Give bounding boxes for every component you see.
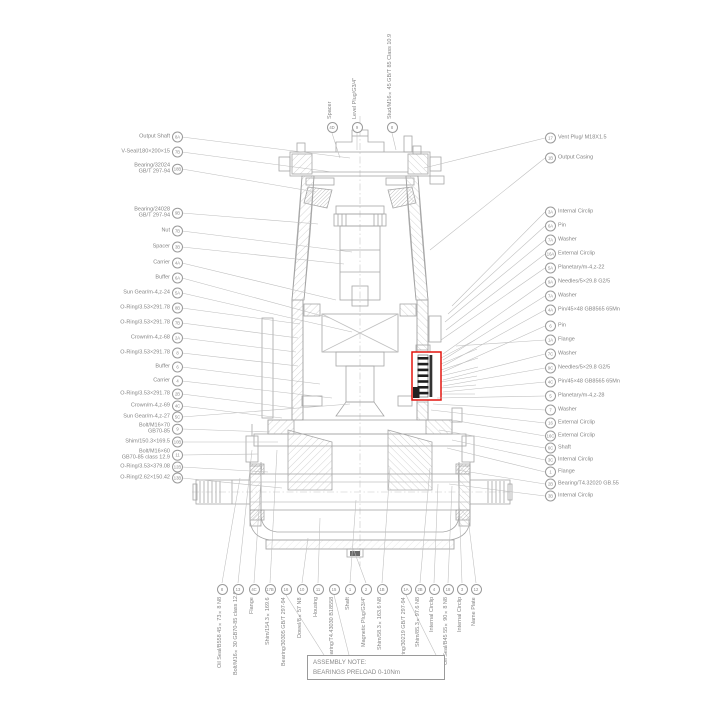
leader-line [449,484,545,496]
part-label: Crown/m-4,z-682A [0,333,183,344]
part-balloon: 7B [172,318,183,329]
part-balloon: 7 [545,405,556,416]
leader-line [182,231,352,252]
leader-line [318,518,320,583]
part-balloon: 10 [297,584,308,595]
leader-line [302,538,308,583]
leader-line [182,467,268,472]
part-balloon: 5A [545,263,556,274]
part-balloon: 7A [545,291,556,302]
part-label-text: O-Ring/3.53×291.78 [120,391,170,397]
part-balloon: 2B [415,584,426,595]
part-balloon: 1A [401,584,412,595]
leader-line [448,226,545,314]
part-label: Spacer3B [0,242,183,253]
part-label: 7AWasher [545,291,723,302]
leader-line [270,450,277,583]
part-balloon: 3 [457,584,468,595]
part-balloon: 7B [172,226,183,237]
part-label: Buffer6 [0,362,183,373]
part-balloon: 4A [545,305,556,316]
part-label-text: Bolt/M16×30 GB70-85 class 12.9 [233,597,243,675]
part-label-text: Pin/45×48 GB8565 65Mn [558,307,620,313]
part-balloon: 6A [545,221,556,232]
part-label-text: Shim/154.3×169.6 [265,597,275,675]
part-balloon: 7C [545,349,556,360]
part-label-text: Washer [558,407,577,413]
part-label-text: Sun Gear/m-4,z-27 [123,414,170,420]
part-label-text: Needles/5×29.8 G2/5 [558,365,610,371]
part-label: Carrier4 [0,376,183,387]
part-label: 16CExternal Circlip [545,431,723,442]
part-balloon: 15 [329,584,340,595]
part-label: 1AFlange [545,335,723,346]
part-balloon: 5A [172,288,183,299]
part-label-text: Flange [558,337,575,343]
part-balloon: 16A [545,249,556,260]
part-balloon: 7B [172,147,183,158]
part-balloon: 4 [429,584,440,595]
part-label: O-Ring/3.53×291.787B [0,318,183,329]
part-balloon: 12B [172,462,183,473]
leader-line [452,440,545,460]
leader-line [457,470,545,484]
leader-line [452,420,545,436]
leader-line [439,430,545,448]
part-balloon: 2A [172,333,183,344]
part-balloon: 1 [345,584,356,595]
leader-line [392,133,396,150]
part-label: 9ANeedles/5×29.8 G2/5 [545,277,723,288]
part-label: 3CInternal Circlip [545,455,723,466]
part-label-text: External Circlip [558,251,595,257]
part-balloon: 2B [545,479,556,490]
part-label-text: Internal Circlip [558,493,593,499]
part-label-text: Nut [161,228,170,234]
part-balloon: 1B [377,584,388,595]
part-balloon: 2B [172,389,183,400]
part-balloon: 6 [545,321,556,332]
leader-line [448,486,452,583]
leader-line [443,310,545,366]
part-label: 7AWasher [545,235,723,246]
part-label: Bearing/24028 GB/T 297-949B [0,207,183,220]
part-label: 4APin/45×48 GB8565 65Mn [545,305,723,316]
part-label-text: Pin/45×48 GB8565 65Mn [558,379,620,385]
part-balloon: 17 [545,133,556,144]
leader-line [182,404,350,417]
part-label-text: Internal Circlip [558,457,593,463]
part-label: Shim/150.3×169.510B [0,437,183,448]
part-label-text: Shim/150.3×169.5 [125,439,170,445]
part-label-text: Oil Seal/B558 45×73×8 N8 [217,597,227,675]
part-balloon: 6C [545,443,556,454]
leader-line [182,367,320,384]
part-balloon: 8 [217,584,228,595]
part-label: O-Ring/3.53×291.788B [0,303,183,314]
leader-line [424,138,545,168]
part-balloon: 9C [545,363,556,374]
part-label: Sun Gear/m-4,z-245A [0,288,183,299]
part-label: 2BBearing/T4.32020 GB.55 [545,479,723,490]
part-balloon: 2 [361,584,372,595]
part-label-text: Bearing/T4.32020 GB.55 [558,481,619,487]
leader-line [468,518,476,583]
part-label-text: Internal Circlip [457,597,467,675]
part-label-text: O-Ring/3.53×379.08 [120,464,170,470]
part-label-text: External Circlip [558,433,595,439]
part-balloon: 17B [265,584,276,595]
leader-line [350,500,356,583]
part-balloon: 16 [545,418,556,429]
part-label-text: Planetary/m-4,z-28 [558,393,604,399]
part-label-text: Bearing/32024 GB/T 297-94 [134,163,170,176]
part-label: 7Washer [545,405,723,416]
part-label-text: Spacer [327,28,337,119]
part-balloon: 1B [545,153,556,164]
part-label: Bolt/M16×70 GB70-859 [0,423,183,436]
part-label: O-Ring/2.62×150.4213B [0,473,183,484]
part-label: 6CShaft [545,443,723,454]
part-label-text: Buffer [155,364,170,370]
part-label: O-Ring/3.53×291.782B [0,389,183,400]
part-label-text: Name Plate [471,597,481,675]
part-balloon: 9B [172,208,183,219]
leader-line [182,338,296,352]
part-label: Output Shaft8A [0,132,183,143]
part-label: O-Ring/3.53×291.788 [0,348,183,359]
leader-line [182,323,298,338]
part-balloon: 4 [172,376,183,387]
leader-line [437,396,545,398]
leader-line [182,169,316,192]
part-label: O-Ring/3.53×379.0812B [0,462,183,473]
leader-line [332,133,340,158]
part-balloon: 8 [172,348,183,359]
part-balloon: 18 [443,584,454,595]
leader-line [443,326,545,372]
part-balloon: 7A [545,235,556,246]
part-label: 3BInternal Circlip [545,491,723,502]
part-balloon: 11 [172,450,183,461]
leader-line [353,548,366,583]
part-label: Buffer6A [0,273,183,284]
part-balloon: 4C [172,401,183,412]
part-label-text: Internal Circlip [558,209,593,215]
part-label: 5APlanetary/m-4,z-22 [545,263,723,274]
part-balloon: 3B [545,491,556,502]
part-label-text: Spacer [153,244,170,250]
part-label: 6Pin [545,321,723,332]
part-label-text: Flange [249,597,259,675]
part-balloon: 3C [545,455,556,466]
part-balloon: 4C [249,584,260,595]
leader-line [430,158,545,250]
part-balloon: 4C [545,377,556,388]
part-label-text: Carrier [153,260,170,266]
part-label-text: Pin [558,223,566,229]
leader-line [456,340,545,346]
part-label-text: Bearing/24028 GB/T 297-94 [134,207,170,220]
part-label-text: Bearing/30305 GB/T 297-94 [281,597,291,675]
part-balloon: 16 [281,584,292,595]
leader-line [441,268,545,340]
assembly-drawing-page: Output Shaft8AV-Seal/180×200×157BBearing… [0,0,726,726]
part-label-text: Buffer [155,275,170,281]
part-label-text: Sun Gear/m-4,z-24 [123,290,170,296]
leader-line [433,404,545,410]
part-balloon: 13 [233,584,244,595]
part-label-text: Vent Plug/ M18X1.5 [558,135,607,141]
part-label-text: Bolt/M16×60 GB70-85 class 12.9 [122,449,170,462]
part-balloon: 9A [545,277,556,288]
leader-line [445,240,545,322]
leader-line [446,254,545,330]
part-label-text: Carrier [153,378,170,384]
leader-line [182,213,318,224]
leader-line [254,464,262,583]
part-label-text: Flange [558,469,575,475]
part-label-text: Output Shaft [139,134,170,140]
leader-line [182,152,332,172]
leader-line [382,468,390,583]
part-label: Sun Gear/m-4,z-275C [0,412,183,423]
part-label-text: Washer [558,293,577,299]
part-label-text: Level Plug/G3/4" [352,28,362,119]
leader-line [182,353,298,366]
assembly-note-title: ASSEMBLY NOTE: [313,658,439,668]
part-label-text: O-Ring/3.53×291.78 [120,350,170,356]
part-label-text: Planetary/m-4,z-22 [558,265,604,271]
part-label: Carrier4A [0,258,183,269]
part-label: Bearing/32024 GB/T 297-9418B [0,163,183,176]
part-label: 4CPin/45×48 GB8565 65Mn [545,377,723,388]
part-label-text: Shaft [558,445,571,451]
leader-line [182,137,350,158]
part-label-text: Bolt/M16×70 GB70-85 [139,423,170,436]
part-balloon: 5 [545,391,556,402]
part-label: 3AInternal Circlip [545,207,723,218]
leader-line [182,247,344,264]
assembly-note-text: BEARINGS PRELOAD 0-10Nm [313,668,439,678]
part-balloon: 18B [172,164,183,175]
part-label: 5Planetary/m-4,z-28 [545,391,723,402]
part-label: 16External Circlip [545,418,723,429]
part-label-text: O-Ring/2.62×150.42 [120,475,170,481]
part-label-text: Washer [558,351,577,357]
part-label: Nut7B [0,226,183,237]
part-label-text: O-Ring/3.53×291.78 [120,320,170,326]
leader-line [434,484,438,583]
part-label-text: Needles/5×29.8 G2/5 [558,279,610,285]
part-balloon: 12 [471,584,482,595]
part-label: 9CNeedles/5×29.8 G2/5 [545,363,723,374]
part-balloon: 8 [387,122,398,133]
part-balloon: 8A [172,132,183,143]
leader-line [182,429,270,432]
leader-line [182,381,332,398]
part-balloon: 11 [313,584,324,595]
part-balloon: 4A [172,258,183,269]
part-label: 1BOutput Casing [545,153,723,164]
part-label-text: Washer [558,237,577,243]
part-balloon: 13B [172,473,183,484]
part-label: 17Vent Plug/ M18X1.5 [545,133,723,144]
part-balloon: 10B [172,437,183,448]
part-label-text: Crown/m-4,z-68 [131,335,170,341]
leader-line [182,394,294,408]
part-balloon: 3B [172,242,183,253]
part-label-text: Crown/m-4,z-69 [131,403,170,409]
part-label-text: External Circlip [558,420,595,426]
part-label-text: O-Ring/3.53×291.78 [120,305,170,311]
part-label: 7CWasher [545,349,723,360]
leader-line [182,454,258,455]
part-label: V-Seal/180×200×157B [0,147,183,158]
leader-line [447,448,545,472]
part-label-text: Pin [558,323,566,329]
part-balloon: 6 [172,362,183,373]
part-balloon: 4D [327,122,338,133]
part-balloon: 5C [172,412,183,423]
part-balloon: 1 [545,467,556,478]
leader-line [182,478,282,488]
part-label-text: Stud/M16×45 GB/T 85 Class 10.9 [387,28,397,119]
assembly-note-box: ASSEMBLY NOTE: BEARINGS PRELOAD 0-10Nm [307,655,445,680]
part-balloon: 16C [545,431,556,442]
part-label-text: Output Casing [558,155,593,161]
leader-line [182,263,336,300]
part-label: 1Flange [545,467,723,478]
part-label: 16AExternal Circlip [545,249,723,260]
part-balloon: 8B [172,303,183,314]
leader-line [182,406,282,418]
part-label: 6APin [545,221,723,232]
part-balloon: 1A [545,335,556,346]
part-balloon: 3A [545,207,556,218]
part-label: Crown/m-4,z-694C [0,401,183,412]
leader-line [222,478,240,583]
leader-line [431,410,545,423]
part-balloon: 6A [172,273,183,284]
part-balloon: 9 [352,122,363,133]
part-label-text: Dowel/8×57 N8 [297,597,307,675]
leader-line [420,468,430,583]
part-label: Bolt/M16×60 GB70-85 class 12.911 [0,449,183,462]
part-balloon: 9 [172,424,183,435]
part-label-text: V-Seal/180×200×15 [121,149,170,155]
leader-line [238,450,252,583]
